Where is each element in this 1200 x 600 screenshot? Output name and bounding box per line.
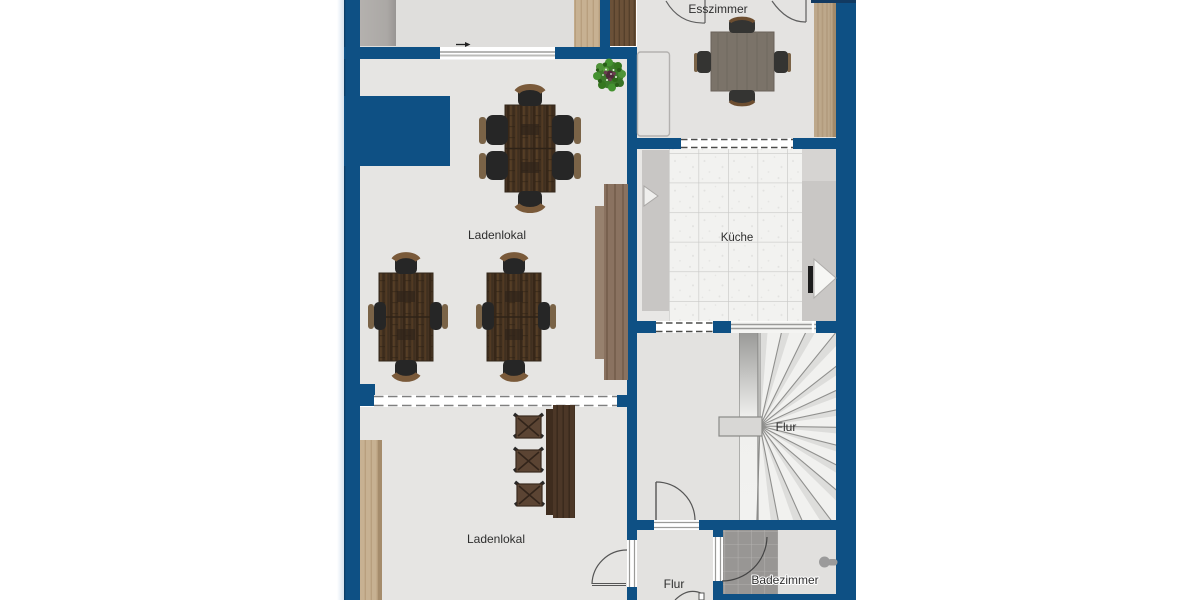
- svg-text:Küche: Küche: [721, 232, 754, 244]
- svg-text:Badezimmer: Badezimmer: [751, 573, 818, 587]
- svg-text:Esszimmer: Esszimmer: [688, 2, 747, 16]
- svg-text:Ladenlokal: Ladenlokal: [467, 532, 525, 546]
- svg-text:Flur: Flur: [664, 577, 685, 591]
- svg-text:Flur: Flur: [776, 420, 797, 434]
- svg-text:Ladenlokal: Ladenlokal: [468, 228, 526, 242]
